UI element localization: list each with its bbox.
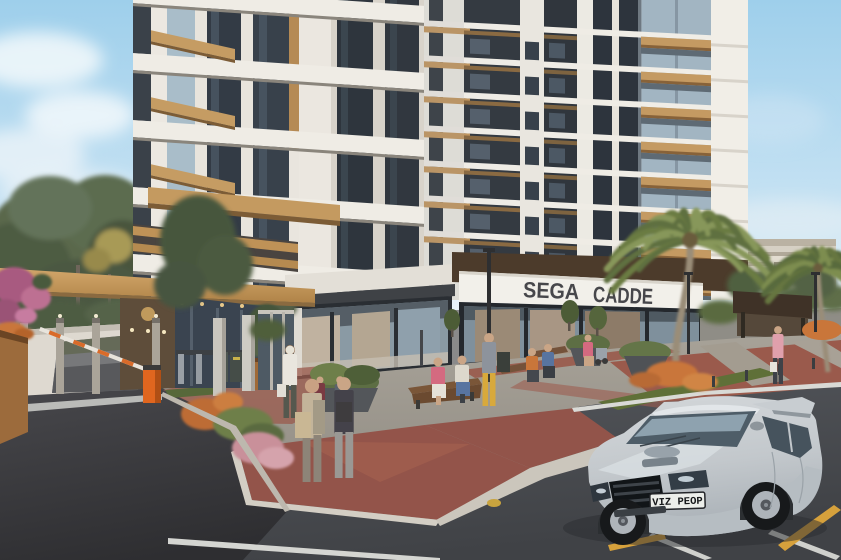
svg-text:CADDE: CADDE: [593, 282, 654, 309]
